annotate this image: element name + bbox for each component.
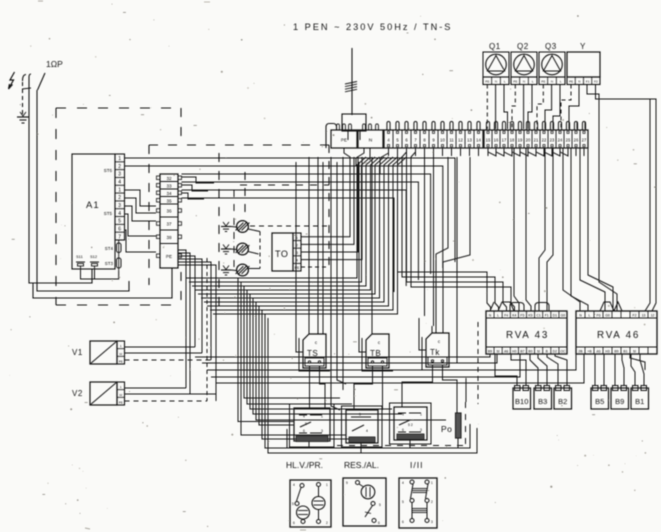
svg-text:H3: H3 xyxy=(605,350,609,354)
svg-text:3: 3 xyxy=(321,429,323,433)
svg-text:TB: TB xyxy=(370,349,381,358)
svg-text:5 2: 5 2 xyxy=(408,423,413,427)
svg-text:I/II: I/II xyxy=(410,460,423,470)
svg-text:B1: B1 xyxy=(623,350,627,354)
svg-text:34: 34 xyxy=(166,191,172,196)
svg-text:B0: B0 xyxy=(528,350,532,354)
svg-text:12: 12 xyxy=(458,138,463,143)
svg-text:5: 5 xyxy=(118,219,121,225)
svg-text:PE: PE xyxy=(569,80,573,84)
svg-text:2B: 2B xyxy=(578,350,583,354)
svg-text:PE: PE xyxy=(541,80,545,84)
svg-text:Q2: Q2 xyxy=(517,42,529,51)
svg-text:26: 26 xyxy=(574,138,579,143)
svg-text:14: 14 xyxy=(476,138,481,143)
svg-text:G0: G0 xyxy=(561,314,566,318)
svg-text:13: 13 xyxy=(467,138,472,143)
svg-text:PE: PE xyxy=(119,359,123,363)
svg-text:Po: Po xyxy=(441,424,452,434)
svg-text:3: 3 xyxy=(431,520,433,524)
svg-text:A6: A6 xyxy=(596,350,600,354)
svg-text:9: 9 xyxy=(346,481,348,485)
svg-text:+B: +B xyxy=(587,350,592,354)
svg-text:B7: B7 xyxy=(520,350,524,354)
svg-text:2: 2 xyxy=(118,164,121,170)
svg-text:M: M xyxy=(633,350,636,354)
svg-text:N: N xyxy=(495,80,497,84)
svg-text:PE: PE xyxy=(166,254,172,259)
svg-text:21: 21 xyxy=(534,138,539,143)
svg-text:N: N xyxy=(369,138,373,144)
svg-text:32: 32 xyxy=(166,176,172,181)
svg-text:H0: H0 xyxy=(512,350,516,354)
svg-text:PE: PE xyxy=(341,138,347,143)
svg-text:1: 1 xyxy=(118,156,121,162)
svg-text:PE: PE xyxy=(119,400,123,404)
svg-text:B9: B9 xyxy=(614,350,618,354)
svg-text:7: 7 xyxy=(118,234,121,240)
svg-text:F2: F2 xyxy=(633,314,637,318)
svg-text:A6: A6 xyxy=(504,350,508,354)
svg-text:1: 1 xyxy=(321,415,323,419)
svg-text:5: 5 xyxy=(359,413,361,417)
svg-text:4: 4 xyxy=(402,413,404,417)
svg-text:4: 4 xyxy=(293,483,295,487)
svg-text:N: N xyxy=(523,80,525,84)
svg-text:N: N xyxy=(551,80,553,84)
svg-text:5: 5 xyxy=(402,500,404,504)
svg-text:1ΩP: 1ΩP xyxy=(46,59,63,69)
svg-text:RVA 46: RVA 46 xyxy=(597,330,640,341)
svg-text:HL.V./PR.: HL.V./PR. xyxy=(286,460,323,470)
svg-text:1 PEN ~ 230V 50Hz / TN-S: 1 PEN ~ 230V 50Hz / TN-S xyxy=(293,22,452,32)
svg-text:5: 5 xyxy=(305,422,307,426)
svg-text:5: 5 xyxy=(379,503,381,507)
svg-text:F6: F6 xyxy=(597,314,601,318)
svg-text:1: 1 xyxy=(118,187,121,193)
svg-text:S11: S11 xyxy=(76,254,84,259)
svg-text:23: 23 xyxy=(550,138,555,143)
svg-text:11: 11 xyxy=(449,138,454,143)
svg-text:20: 20 xyxy=(526,138,531,143)
svg-text:25: 25 xyxy=(566,138,571,143)
svg-text:13: 13 xyxy=(642,314,646,318)
svg-text:6: 6 xyxy=(402,520,404,524)
svg-text:Tk: Tk xyxy=(430,348,440,357)
svg-text:TO: TO xyxy=(275,249,288,259)
svg-text:19: 19 xyxy=(518,138,523,143)
svg-text:L: L xyxy=(497,314,499,318)
svg-text:Q1: Q1 xyxy=(489,42,501,51)
svg-text:V1: V1 xyxy=(72,348,83,357)
svg-text:37: 37 xyxy=(166,222,172,227)
svg-text:ST3: ST3 xyxy=(105,261,114,266)
svg-text:3: 3 xyxy=(118,172,121,178)
svg-text:1: 1 xyxy=(431,481,433,485)
svg-text:2: 2 xyxy=(326,521,328,525)
svg-text:12: 12 xyxy=(651,314,655,318)
svg-text:16: 16 xyxy=(494,138,499,143)
svg-text:38: 38 xyxy=(166,235,172,240)
svg-text:4: 4 xyxy=(366,429,368,433)
svg-text:D1: D1 xyxy=(553,314,557,318)
svg-text:G0: G0 xyxy=(605,314,610,318)
svg-text:6: 6 xyxy=(118,226,121,232)
svg-text:4: 4 xyxy=(118,180,121,186)
svg-text:K4: K4 xyxy=(512,314,516,318)
svg-text:S12: S12 xyxy=(90,254,98,259)
svg-text:27: 27 xyxy=(582,138,587,143)
svg-text:17: 17 xyxy=(502,138,507,143)
svg-text:15: 15 xyxy=(486,138,491,143)
svg-text:Q3: Q3 xyxy=(545,42,557,51)
svg-text:10: 10 xyxy=(440,138,445,143)
svg-text:B10: B10 xyxy=(515,397,528,406)
svg-text:D2: D2 xyxy=(553,350,557,354)
svg-text:B2: B2 xyxy=(558,397,567,406)
svg-text:5: 5 xyxy=(292,502,294,506)
svg-text:4: 4 xyxy=(118,211,121,217)
svg-text:33: 33 xyxy=(166,183,172,188)
svg-text:22: 22 xyxy=(542,138,547,143)
svg-text:M: M xyxy=(497,350,500,354)
svg-text:6: 6 xyxy=(303,429,305,433)
svg-text:PE: PE xyxy=(485,80,489,84)
svg-text:6: 6 xyxy=(402,428,404,432)
svg-text:F5: F5 xyxy=(520,314,524,318)
svg-text:F1: F1 xyxy=(586,80,590,84)
svg-text:1: 1 xyxy=(420,413,422,417)
svg-text:2: 2 xyxy=(118,195,121,201)
svg-text:RVA 43: RVA 43 xyxy=(506,330,549,341)
svg-text:ST4: ST4 xyxy=(105,246,114,251)
svg-text:M: M xyxy=(537,350,540,354)
svg-text:B9: B9 xyxy=(615,397,624,406)
svg-text:V2: V2 xyxy=(72,389,83,398)
svg-text:36: 36 xyxy=(166,209,172,214)
svg-text:Y: Y xyxy=(580,42,586,51)
svg-text:2: 2 xyxy=(431,500,433,504)
svg-text:F2: F2 xyxy=(594,80,598,84)
svg-text:OC: OC xyxy=(560,350,566,354)
svg-text:TS: TS xyxy=(307,349,318,358)
svg-text:F1: F1 xyxy=(545,314,549,318)
svg-text:B3: B3 xyxy=(538,397,547,406)
svg-text:N: N xyxy=(578,80,580,84)
svg-text:RES./AL.: RES./AL. xyxy=(344,460,379,470)
svg-text:C1: C1 xyxy=(536,314,540,318)
svg-text:4: 4 xyxy=(303,415,305,419)
svg-text:B9: B9 xyxy=(488,350,492,354)
svg-text:3: 3 xyxy=(420,428,422,432)
svg-text:1: 1 xyxy=(326,483,328,487)
svg-text:35: 35 xyxy=(166,198,172,203)
svg-text:24: 24 xyxy=(558,138,563,143)
svg-text:PE: PE xyxy=(295,266,300,270)
svg-text:4: 4 xyxy=(402,481,404,485)
svg-text:6: 6 xyxy=(378,521,380,525)
svg-text:F4: F4 xyxy=(504,314,508,318)
svg-text:L: L xyxy=(589,314,591,318)
svg-text:18: 18 xyxy=(510,138,515,143)
svg-text:ST6: ST6 xyxy=(104,168,113,173)
svg-text:K5: K5 xyxy=(528,314,532,318)
svg-text:ST5: ST5 xyxy=(104,211,113,216)
svg-text:3: 3 xyxy=(118,203,121,209)
svg-text:B1: B1 xyxy=(635,397,644,406)
svg-text:A1: A1 xyxy=(86,200,100,211)
svg-text:PE: PE xyxy=(513,80,517,84)
svg-text:B5: B5 xyxy=(595,397,604,406)
svg-text:6: 6 xyxy=(293,521,295,525)
